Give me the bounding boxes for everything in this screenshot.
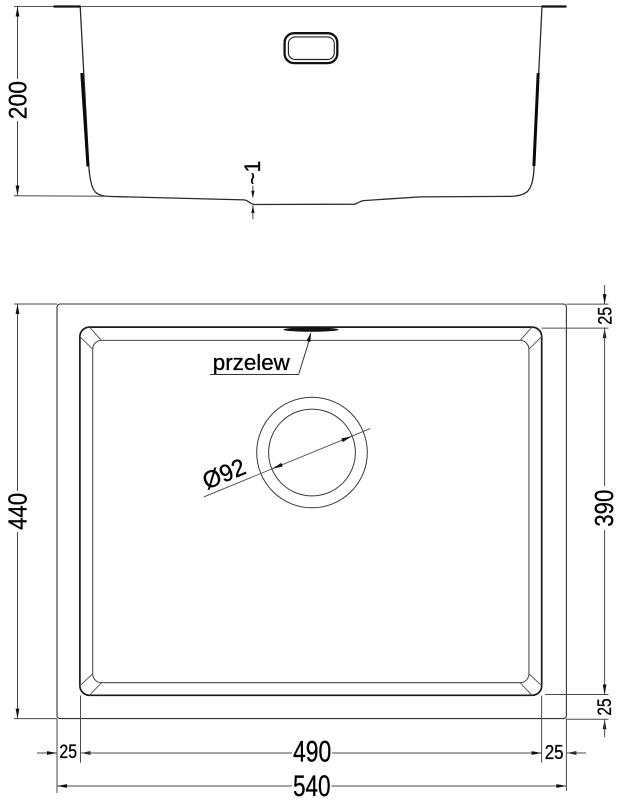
svg-text:~1: ~1: [240, 161, 265, 185]
svg-text:540: 540: [293, 770, 331, 800]
svg-text:25: 25: [545, 742, 564, 764]
svg-text:25: 25: [59, 742, 77, 763]
svg-text:25: 25: [594, 698, 616, 715]
svg-text:390: 390: [589, 490, 619, 527]
svg-text:440: 440: [5, 493, 33, 530]
svg-text:Ø92: Ø92: [199, 454, 250, 496]
svg-text:25: 25: [594, 307, 616, 325]
svg-text:490: 490: [293, 736, 331, 769]
svg-text:200: 200: [4, 81, 32, 119]
svg-text:przelew: przelew: [213, 350, 290, 375]
